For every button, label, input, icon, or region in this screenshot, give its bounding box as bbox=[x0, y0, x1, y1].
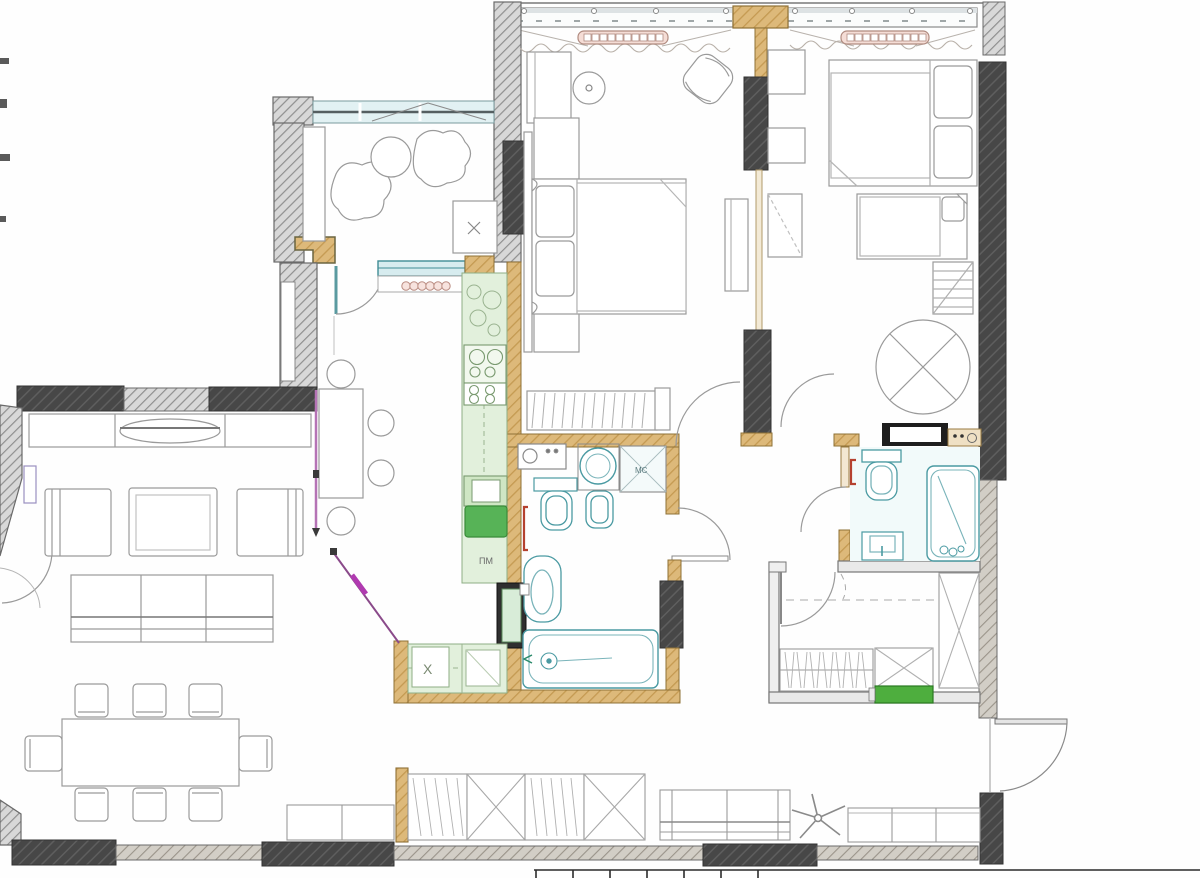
svg-text:МС: МС bbox=[635, 466, 648, 475]
svg-text:ПМ: ПМ bbox=[479, 556, 493, 566]
svg-text:X: X bbox=[423, 661, 433, 677]
